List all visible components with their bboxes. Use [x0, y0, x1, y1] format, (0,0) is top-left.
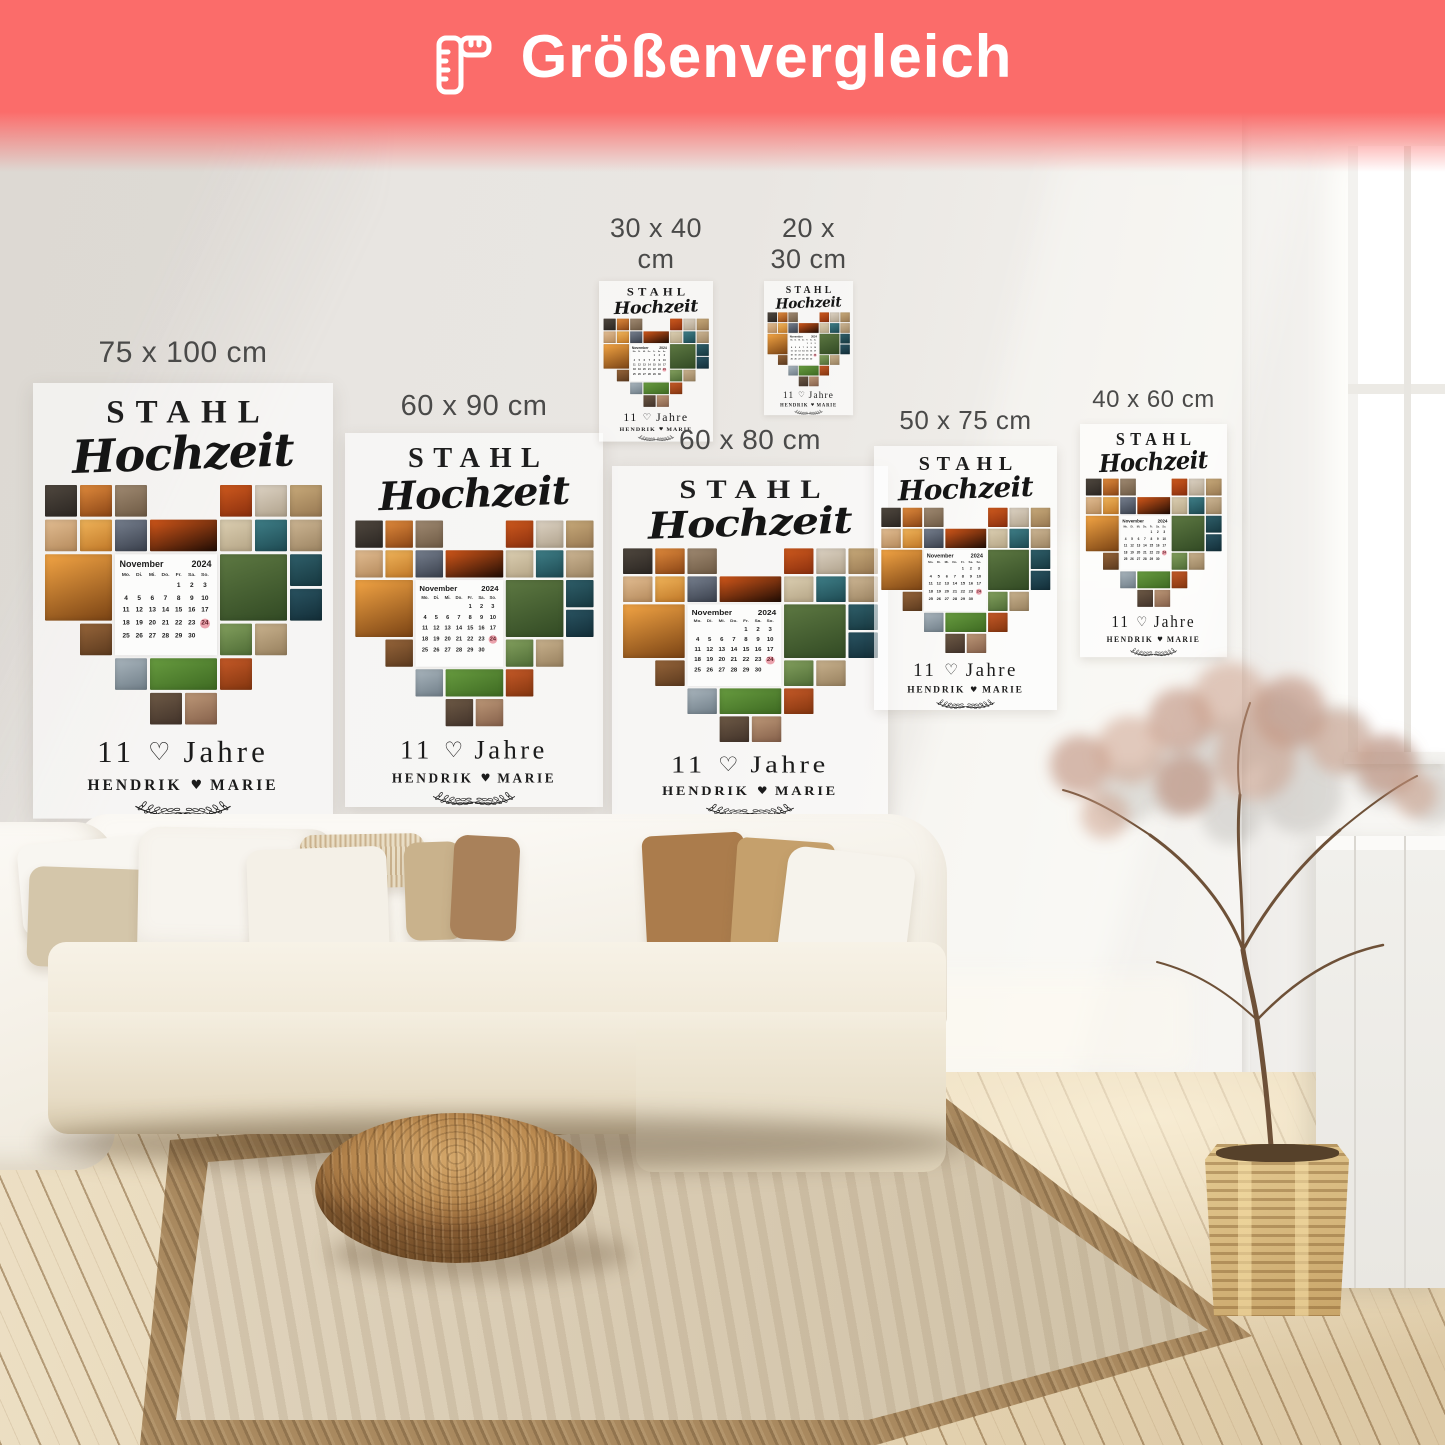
- collage-photo-tile-dusk_couple: [1120, 497, 1136, 514]
- collage-photo-tile-sunset_person: [655, 548, 684, 574]
- calendar-tile: November 2024 Mo.Di.Mi.Do.Fr.Sa.So. 1234…: [1120, 515, 1170, 569]
- collage-photo-tile-beach_couple: [683, 370, 695, 382]
- collage-photo-tile-crowd_warm: [80, 623, 112, 655]
- poster-title-script: Hochzeit: [775, 295, 841, 311]
- size-label: 20 x 30 cm: [764, 213, 853, 275]
- calendar-date: 3: [662, 355, 667, 358]
- collage-photo-tile-dunes: [819, 323, 829, 333]
- calendar-date: 17: [975, 582, 983, 586]
- collage-photo-tile-rock_couple: [1120, 478, 1136, 495]
- calendar-weekday: So.: [487, 596, 498, 601]
- calendar-date: 25: [120, 632, 133, 639]
- heart-filled-icon: ♥: [811, 403, 814, 408]
- calendar-date: 27: [716, 668, 728, 674]
- heart-filled-icon: ♥: [191, 778, 203, 793]
- calendar-date: 14: [453, 626, 464, 632]
- calendar-weekday: So.: [975, 561, 983, 565]
- calendar-date: 8: [740, 637, 752, 643]
- collage-photo-tile-orange_couple: [220, 484, 252, 516]
- calendar-weekday: Sa.: [476, 596, 487, 601]
- collage-photo-tile-dark_silhouette: [799, 323, 819, 333]
- poster-title-script: Hochzeit: [897, 474, 1033, 505]
- collage-photo-tile-wedding_arch: [670, 344, 695, 368]
- collage-photo-tile-sunset_person: [1103, 478, 1119, 495]
- collage-photo-tile-red_picnic: [784, 688, 813, 714]
- heart-photo-collage: November 2024 Mo.Di.Mi.Do.Fr.Sa.So. 1234…: [767, 312, 849, 386]
- calendar-date: 24: [200, 618, 210, 628]
- calendar-weekday-row: Mo.Di.Mi.Do.Fr.Sa.So.: [927, 561, 983, 565]
- calendar-date: 8: [959, 574, 967, 578]
- calendar-header: November 2024: [790, 335, 817, 338]
- anniversary-years-row: 11 ♡ Jahre: [783, 389, 834, 400]
- collage-photo-tile-teal_dark: [1030, 550, 1050, 569]
- calendar-date: 10: [487, 615, 498, 621]
- collage-photo-tile-wedding_arch: [220, 553, 287, 619]
- calendar-year: 2024: [1158, 518, 1168, 524]
- collage-photo-tile-sunset_glow: [655, 576, 684, 602]
- calendar-date: 23: [657, 368, 662, 371]
- collage-photo-tile-mountain: [767, 312, 777, 322]
- collage-photo-tile-beach_couple: [255, 623, 287, 655]
- collage-photo-tile-beach_couple: [816, 660, 845, 686]
- wedding-calendar-poster: STAHL Hochzeit November 2024 Mo.Di.Mi.Do…: [599, 281, 713, 442]
- calendar-date: 8: [465, 615, 476, 621]
- calendar-year: 2024: [659, 346, 667, 350]
- laurel-branches-icon: [401, 790, 547, 807]
- calendar-date: 26: [133, 632, 146, 639]
- calendar-date: 13: [442, 626, 453, 632]
- calendar-weekday: Mo.: [419, 596, 430, 601]
- size-label: 30 x 40 cm: [599, 213, 713, 275]
- collage-photo-tile-sunset_chairs: [767, 334, 787, 354]
- years-word: Jahre: [656, 411, 688, 424]
- calendar-date: 19: [704, 657, 716, 663]
- calendar-date: 16: [967, 582, 975, 586]
- calendar-date: 18: [927, 589, 935, 593]
- collage-photo-tile-dark_silhouette: [445, 550, 503, 577]
- calendar-date: 14: [159, 607, 172, 614]
- calendar-date: 5: [935, 574, 943, 578]
- calendar-date: 2: [967, 567, 975, 571]
- collage-photo-tile-garden_path: [505, 640, 533, 667]
- calendar-weekday: Mi.: [442, 596, 453, 601]
- calendar-date: 13: [716, 647, 728, 653]
- poster-mockup-60x90: 60 x 90 cm STAHL Hochzeit November 2024 …: [345, 390, 603, 807]
- calendar-date: 7: [951, 574, 959, 578]
- calendar-year: 2024: [481, 584, 498, 593]
- collage-photo-tile-teal_dark: [1206, 515, 1222, 532]
- heart-filled-icon: ♥: [970, 685, 977, 694]
- collage-photo-tile-bride: [1009, 508, 1029, 527]
- collage-photo-tile-beach_dog: [848, 548, 877, 574]
- collage-photo-tile-dunes: [220, 519, 252, 551]
- calendar-date: 5: [704, 637, 716, 643]
- calendar-weekday: Sa.: [752, 619, 764, 624]
- collage-photo-tile-sunset_chairs: [881, 550, 922, 590]
- calendar-weekday: Fr.: [740, 619, 752, 624]
- collage-photo-tile-field_haze: [45, 519, 77, 551]
- calendar-weekday: Di.: [935, 561, 943, 565]
- calendar-weekday-row: Mo.Di.Mi.Do.Fr.Sa.So.: [120, 572, 212, 578]
- calendar-header: November 2024: [419, 584, 498, 593]
- anniversary-years-row: 11 ♡ Jahre: [671, 750, 829, 779]
- calendar-date: 21: [951, 589, 959, 593]
- calendar-date: 28: [728, 668, 740, 674]
- collage-photo-tile-field_haze: [603, 331, 615, 343]
- heart-photo-collage: November 2024 Mo.Di.Mi.Do.Fr.Sa.So. 1234…: [623, 548, 878, 742]
- calendar-date: 4: [927, 574, 935, 578]
- collage-photo-tile-dark_silhouette: [719, 576, 781, 602]
- calendar-date: 7: [159, 594, 172, 601]
- calendar-date: 30: [809, 358, 813, 360]
- calendar-date: 2: [185, 582, 198, 589]
- calendar-date: 11: [419, 626, 430, 632]
- wicker-basket-planter: [1202, 1144, 1352, 1316]
- calendar-date: 21: [728, 657, 740, 663]
- calendar-weekday: Sa.: [967, 561, 975, 565]
- collage-photo-tile-bottom_couple: [475, 699, 503, 726]
- calendar-dates-grid: 1234567891011121314151617181920212223242…: [927, 565, 983, 603]
- collage-photo-tile-bottom_couple: [751, 716, 780, 742]
- calendar-date: 2: [476, 604, 487, 610]
- calendar-weekday: Mo.: [120, 572, 133, 578]
- calendar-date: 30: [657, 373, 662, 376]
- collage-photo-tile-beach_dog: [696, 319, 708, 331]
- collage-photo-tile-mountain: [355, 521, 383, 548]
- calendar-date: 25: [927, 597, 935, 601]
- collage-photo-tile-sunset_glow: [80, 519, 112, 551]
- collage-photo-tile-green_picnic: [643, 382, 668, 394]
- collage-photo-tile-crowd_warm: [385, 640, 413, 667]
- heart-photo-collage: November 2024 Mo.Di.Mi.Do.Fr.Sa.So. 1234…: [45, 484, 322, 724]
- calendar-date: 6: [442, 615, 453, 621]
- heart-outline-icon: ♡: [148, 737, 170, 766]
- calendar-weekday: Mi.: [716, 619, 728, 624]
- size-label: 50 x 75 cm: [874, 406, 1057, 436]
- collage-photo-tile-sunset_person: [617, 319, 629, 331]
- calendar-date: 5: [133, 594, 146, 601]
- calendar-weekday: Mi.: [146, 572, 159, 578]
- collage-photo-tile-green_picnic: [945, 613, 986, 632]
- collage-photo-tile-beach_pair: [696, 331, 708, 343]
- collage-photo-tile-beach_pair: [848, 576, 877, 602]
- calendar-date: 4: [419, 615, 430, 621]
- collage-photo-tile-mountain: [45, 484, 77, 516]
- collage-photo-tile-small_couple: [788, 366, 798, 376]
- collage-photo-tile-teal_dark: [290, 553, 322, 585]
- calendar-date: 29: [959, 597, 967, 601]
- collage-photo-tile-dusk_couple: [687, 576, 716, 602]
- calendar-date: 15: [465, 626, 476, 632]
- calendar-date: 14: [951, 582, 959, 586]
- calendar-weekday: Fr.: [172, 572, 185, 578]
- collage-photo-tile-beach_dog: [1030, 508, 1050, 527]
- collage-photo-tile-red_picnic: [819, 366, 829, 376]
- size-comparison-banner: Größenvergleich: [0, 0, 1445, 176]
- collage-photo-tile-garden_path: [670, 370, 682, 382]
- calendar-date: 17: [487, 626, 498, 632]
- calendar-date: 20: [716, 657, 728, 663]
- calendar-dates-grid: 1234567891011121314151617181920212223242…: [419, 602, 498, 656]
- poster-mockup-20x30: 20 x 30 cm STAHL Hochzeit November 2024 …: [764, 213, 853, 415]
- calendar-date: 18: [419, 637, 430, 643]
- calendar-date: 27: [146, 632, 159, 639]
- collage-photo-tile-sunset_person: [385, 521, 413, 548]
- calendar-date: 28: [453, 647, 464, 653]
- collage-photo-tile-bottom_dark: [445, 699, 473, 726]
- calendar-date: 20: [442, 637, 453, 643]
- collage-photo-tile-bride: [255, 484, 287, 516]
- wedding-calendar-poster: STAHL Hochzeit November 2024 Mo.Di.Mi.Do…: [33, 383, 333, 819]
- anniversary-years-row: 11 ♡ Jahre: [97, 734, 269, 770]
- name-right: MARIE: [775, 784, 838, 798]
- collage-photo-tile-garden_path: [784, 660, 813, 686]
- collage-photo-tile-teal_dark: [840, 334, 850, 344]
- calendar-date: 30: [476, 647, 487, 653]
- collage-photo-tile-sea_dark: [696, 357, 708, 369]
- calendar-date: 9: [967, 574, 975, 578]
- collage-photo-tile-wedding_arch: [784, 604, 846, 658]
- calendar-date: 16: [185, 607, 198, 614]
- collage-photo-tile-dusk_couple: [788, 323, 798, 333]
- calendar-date: 20: [146, 619, 159, 626]
- calendar-date: 27: [442, 647, 453, 653]
- calendar-date: 24: [489, 635, 498, 644]
- calendar-dates-grid: 1234567891011121314151617181920212223242…: [692, 625, 777, 675]
- calendar-weekday: Do.: [453, 596, 464, 601]
- calendar-date: 23: [809, 354, 813, 356]
- calendar-tile: November 2024 Mo.Di.Mi.Do.Fr.Sa.So. 1234…: [115, 553, 217, 654]
- calendar-date: 10: [198, 594, 211, 601]
- collage-photo-tile-bride: [683, 319, 695, 331]
- calendar-date: 3: [813, 342, 817, 344]
- calendar-date: 9: [752, 637, 764, 643]
- calendar-weekday: Mo.: [927, 561, 935, 565]
- collage-photo-tile-sunset_chairs: [603, 344, 628, 368]
- calendar-tile: November 2024 Mo.Di.Mi.Do.Fr.Sa.So. 1234…: [687, 604, 781, 686]
- wedding-calendar-poster: STAHL Hochzeit November 2024 Mo.Di.Mi.Do…: [345, 433, 603, 807]
- calendar-month: November: [692, 608, 732, 617]
- collage-photo-tile-bride: [830, 312, 840, 322]
- poster-title-script: Hochzeit: [71, 428, 294, 479]
- collage-photo-tile-bottom_dark: [945, 634, 965, 653]
- calendar-month: November: [419, 584, 457, 593]
- couple-names-row: HENDRIK ♥ MARIE: [662, 784, 838, 798]
- years-number: 11: [400, 735, 433, 766]
- calendar-date: 1: [172, 582, 185, 589]
- calendar-date: 10: [764, 637, 776, 643]
- collage-photo-tile-sunset_chairs: [1086, 515, 1119, 551]
- collage-photo-tile-red_picnic: [1171, 571, 1187, 588]
- collage-photo-tile-dark_silhouette: [1137, 497, 1170, 514]
- calendar-date: 3: [487, 604, 498, 610]
- calendar-weekday: Mi.: [943, 561, 951, 565]
- collage-photo-tile-mountain: [1086, 478, 1102, 495]
- collage-photo-tile-beach_dog: [290, 484, 322, 516]
- calendar-date: 19: [935, 589, 943, 593]
- collage-photo-tile-sea_dark: [1206, 534, 1222, 551]
- calendar-date: 3: [1161, 530, 1167, 534]
- calendar-date: 22: [172, 619, 185, 626]
- collage-photo-tile-sunset_person: [778, 312, 788, 322]
- collage-photo-tile-orange_couple: [505, 521, 533, 548]
- calendar-date: 17: [813, 350, 817, 352]
- collage-photo-tile-orange_couple: [1171, 478, 1187, 495]
- calendar-year: 2024: [191, 558, 211, 569]
- collage-photo-tile-orange_couple: [988, 508, 1008, 527]
- calendar-date: 19: [133, 619, 146, 626]
- calendar-date: 12: [935, 582, 943, 586]
- collage-photo-tile-sunset_person: [902, 508, 922, 527]
- pillow-brown-small: [449, 834, 520, 941]
- calendar-dates-grid: 1234567891011121314151617181920212223242…: [632, 354, 667, 377]
- calendar-weekday: Fr.: [465, 596, 476, 601]
- calendar-year: 2024: [758, 608, 776, 617]
- collage-photo-tile-bottom_couple: [657, 395, 669, 407]
- calendar-weekday: Do.: [951, 561, 959, 565]
- couple-names-row: HENDRIK ♥ MARIE: [392, 771, 556, 786]
- collage-photo-tile-dusk_couple: [924, 529, 944, 548]
- collage-photo-tile-beach_pair: [1030, 529, 1050, 548]
- calendar-weekday: Di.: [133, 572, 146, 578]
- calendar-date: 17: [198, 607, 211, 614]
- calendar-date: 24: [976, 588, 982, 594]
- calendar-weekday-row: Mo.Di.Mi.Do.Fr.Sa.So.: [790, 339, 817, 341]
- collage-photo-tile-crowd_warm: [902, 592, 922, 611]
- calendar-date: 6: [943, 574, 951, 578]
- collage-photo-tile-field_haze: [767, 323, 777, 333]
- calendar-tile: November 2024 Mo.Di.Mi.Do.Fr.Sa.So. 1234…: [630, 344, 669, 381]
- calendar-date: 13: [943, 582, 951, 586]
- collage-photo-tile-green_picnic: [799, 366, 819, 376]
- collage-photo-tile-bottom_dark: [719, 716, 748, 742]
- calendar-date: 12: [431, 626, 442, 632]
- size-comparison-product-image: 75 x 100 cm STAHL Hochzeit November 2024…: [0, 0, 1445, 1445]
- calendar-weekday: Di.: [704, 619, 716, 624]
- calendar-weekday: So.: [662, 351, 667, 353]
- couple-names-row: HENDRIK ♥ MARIE: [87, 776, 278, 794]
- calendar-date: 28: [159, 632, 172, 639]
- calendar-weekday: Do.: [728, 619, 740, 624]
- collage-photo-tile-rock_couple: [415, 521, 443, 548]
- calendar-weekday-row: Mo.Di.Mi.Do.Fr.Sa.So.: [419, 596, 498, 601]
- calendar-tile: November 2024 Mo.Di.Mi.Do.Fr.Sa.So. 1234…: [415, 580, 503, 667]
- collage-photo-tile-beach_pair: [290, 519, 322, 551]
- calendar-date: 17: [662, 364, 667, 367]
- calendar-month: November: [790, 335, 803, 338]
- anniversary-years-row: 11 ♡ Jahre: [400, 735, 548, 766]
- calendar-date: 9: [185, 594, 198, 601]
- calendar-date: 12: [133, 607, 146, 614]
- collage-photo-tile-green_picnic: [445, 669, 503, 696]
- calendar-tile: November 2024 Mo.Di.Mi.Do.Fr.Sa.So. 1234…: [788, 334, 818, 365]
- years-number: 11: [783, 389, 794, 400]
- calendar-header: November 2024: [120, 558, 212, 569]
- collage-photo-tile-beach_couple: [1189, 552, 1205, 569]
- calendar-date: 10: [813, 346, 817, 348]
- wedding-calendar-poster: STAHL Hochzeit November 2024 Mo.Di.Mi.Do…: [764, 281, 853, 415]
- years-word: Jahre: [809, 389, 834, 400]
- collage-photo-tile-rock_couple: [630, 319, 642, 331]
- calendar-month: November: [927, 553, 954, 559]
- calendar-weekday-row: Mo.Di.Mi.Do.Fr.Sa.So.: [1122, 525, 1167, 528]
- calendar-date: 26: [704, 668, 716, 674]
- name-left: HENDRIK: [780, 402, 808, 407]
- calendar-date: 11: [120, 607, 133, 614]
- collage-photo-tile-dunes: [988, 529, 1008, 548]
- calendar-date: 30: [1155, 557, 1161, 561]
- name-right: MARIE: [210, 776, 278, 794]
- calendar-date: 15: [172, 607, 185, 614]
- collage-photo-tile-orange_couple: [670, 319, 682, 331]
- name-right: MARIE: [497, 771, 556, 786]
- calendar-date: 14: [728, 647, 740, 653]
- collage-photo-tile-sunset_person: [80, 484, 112, 516]
- heart-photo-collage: November 2024 Mo.Di.Mi.Do.Fr.Sa.So. 1234…: [1086, 478, 1222, 606]
- collage-photo-tile-sea_dark: [840, 344, 850, 354]
- anniversary-years-row: 11 ♡ Jahre: [623, 411, 688, 424]
- calendar-date: 11: [927, 582, 935, 586]
- calendar-date: 19: [431, 637, 442, 643]
- poster-mockup-60x80: 60 x 80 cm STAHL Hochzeit November 2024 …: [612, 424, 888, 818]
- calendar-date: 10: [662, 359, 667, 362]
- calendar-date: 16: [752, 647, 764, 653]
- calendar-date: 24: [766, 656, 775, 664]
- calendar-date: 10: [1161, 537, 1167, 541]
- collage-photo-tile-bride: [1189, 478, 1205, 495]
- calendar-weekday: So.: [764, 619, 776, 624]
- collage-photo-tile-dunes: [1171, 497, 1187, 514]
- name-left: HENDRIK: [907, 685, 965, 696]
- calendar-date: 24: [814, 354, 817, 357]
- calendar-date: 13: [146, 607, 159, 614]
- collage-photo-tile-sunset_chairs: [355, 580, 413, 637]
- collage-photo-tile-orange_couple: [784, 548, 813, 574]
- calendar-date: 3: [198, 582, 211, 589]
- collage-photo-tile-bottom_dark: [799, 376, 809, 386]
- collage-photo-tile-rock_couple: [687, 548, 716, 574]
- collage-photo-tile-teal_dark: [566, 580, 594, 607]
- calendar-date: 3: [975, 567, 983, 571]
- calendar-date: 30: [185, 632, 198, 639]
- calendar-header: November 2024: [692, 608, 777, 617]
- calendar-date: 25: [419, 647, 430, 653]
- years-word: Jahre: [474, 735, 547, 766]
- collage-photo-tile-field_haze: [881, 529, 901, 548]
- calendar-weekday-row: Mo.Di.Mi.Do.Fr.Sa.So.: [692, 619, 777, 624]
- calendar-weekday: Do.: [159, 572, 172, 578]
- calendar-date: 1: [959, 567, 967, 571]
- collage-photo-tile-rock_couple: [924, 508, 944, 527]
- calendar-date: 26: [935, 597, 943, 601]
- collage-photo-tile-wedding_arch: [505, 580, 563, 637]
- years-number: 11: [97, 734, 135, 770]
- heart-photo-collage: November 2024 Mo.Di.Mi.Do.Fr.Sa.So. 1234…: [603, 319, 708, 407]
- collage-photo-tile-teal_dark: [848, 604, 877, 630]
- size-label: 60 x 90 cm: [345, 390, 603, 423]
- calendar-date: 22: [740, 657, 752, 663]
- name-left: HENDRIK: [392, 771, 474, 786]
- collage-photo-tile-green_picnic: [1137, 571, 1170, 588]
- wicker-pouf: [315, 1113, 597, 1263]
- collage-photo-tile-beach_pair: [840, 323, 850, 333]
- collage-photo-tile-sea_dark: [1030, 571, 1050, 590]
- collage-photo-tile-field_haze: [1086, 497, 1102, 514]
- collage-photo-tile-field_haze: [623, 576, 652, 602]
- ruler-icon: [433, 28, 495, 100]
- collage-photo-tile-mountain: [881, 508, 901, 527]
- calendar-date: 8: [172, 594, 185, 601]
